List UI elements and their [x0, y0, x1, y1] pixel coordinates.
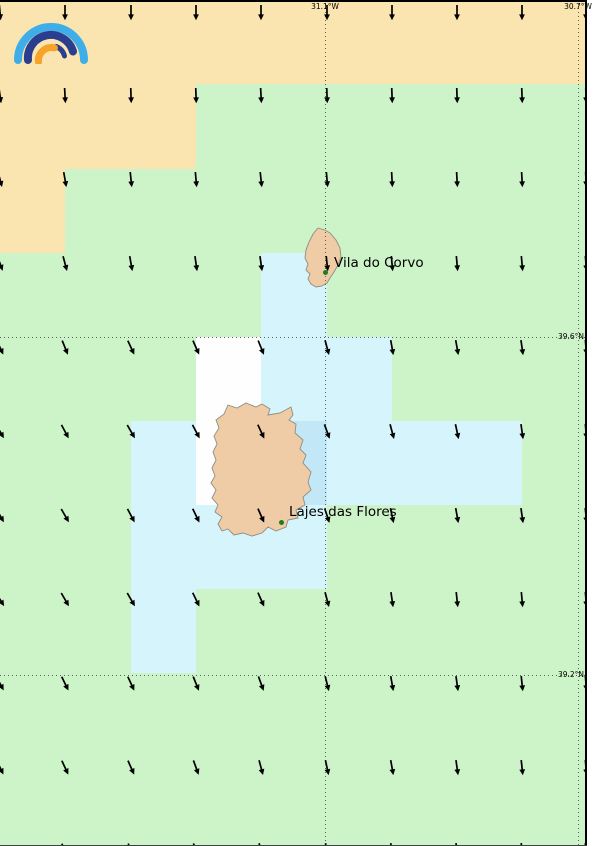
- wind-arrow-icon: [254, 254, 268, 273]
- wind-arrow-icon: [385, 590, 399, 609]
- wind-arrow-icon: [451, 171, 464, 189]
- wind-arrow-icon: [451, 87, 464, 104]
- wind-arrow-icon: [321, 87, 334, 104]
- parallel-39-2n-line: [0, 675, 587, 676]
- wind-arrow-icon: [515, 591, 528, 609]
- wind-arrow-icon: [320, 171, 333, 189]
- wind-arrow-icon: [190, 87, 203, 104]
- wind-arrow-icon: [516, 87, 529, 104]
- wind-arrow-icon: [450, 674, 464, 693]
- tick-label-31-1w: 31.1°W: [305, 2, 345, 11]
- wind-arrow-icon: [515, 674, 529, 692]
- wind-arrow-icon: [515, 758, 529, 776]
- wind-arrow-icon: [386, 171, 399, 189]
- wind-arrow-icon: [451, 4, 463, 21]
- wind-arrow-icon: [125, 4, 137, 21]
- wind-arrow-icon: [515, 506, 529, 525]
- parallel-39-6n-line: [0, 337, 587, 338]
- map-right-margin: [587, 0, 600, 846]
- wind-arrow-icon: [255, 4, 267, 21]
- wind-arrow-icon: [515, 422, 529, 441]
- wind-arrow-icon: [516, 4, 528, 21]
- wind-arrow-icon: [124, 170, 138, 188]
- wind-arrow-icon: [255, 87, 268, 105]
- wind-arrow-icon: [59, 87, 72, 105]
- islands-layer: [0, 0, 600, 846]
- wind-arrow-icon: [515, 255, 528, 273]
- tick-label-39-6n: 39.6°N: [544, 332, 584, 341]
- wind-arrow-icon: [386, 4, 398, 21]
- wind-arrow-icon: [516, 171, 529, 189]
- wind-arrow-icon: [515, 338, 529, 357]
- rainbow-logo-icon: [12, 14, 92, 64]
- place-label-lajes-das-flores: Lajes das Flores: [289, 504, 397, 520]
- wind-arrow-icon: [125, 87, 138, 104]
- tick-label-30-7w: 30.7°W: [558, 2, 598, 11]
- tick-label-39-2n: 39.2°N: [544, 670, 584, 679]
- wind-arrow-icon: [190, 4, 202, 21]
- map-frame-top: [0, 0, 587, 2]
- wind-arrow-icon: [189, 254, 203, 273]
- wind-arrow-icon: [386, 87, 399, 104]
- map-frame-right: [585, 0, 587, 846]
- wind-arrow-icon: [254, 170, 268, 188]
- wind-map-canvas: 31.1°W 30.7°W 39.6°N 39.2°N Vila do Corv…: [0, 0, 600, 846]
- wind-arrow-icon: [189, 171, 202, 189]
- wind-arrow-icon: [450, 758, 464, 777]
- place-marker-lajes-das-flores: [279, 520, 284, 525]
- place-marker-vila-do-corvo: [323, 270, 328, 275]
- place-label-vila-do-corvo: Vila do Corvo: [334, 255, 424, 271]
- wind-arrow-icon: [450, 590, 464, 608]
- wind-arrow-icon: [450, 255, 463, 273]
